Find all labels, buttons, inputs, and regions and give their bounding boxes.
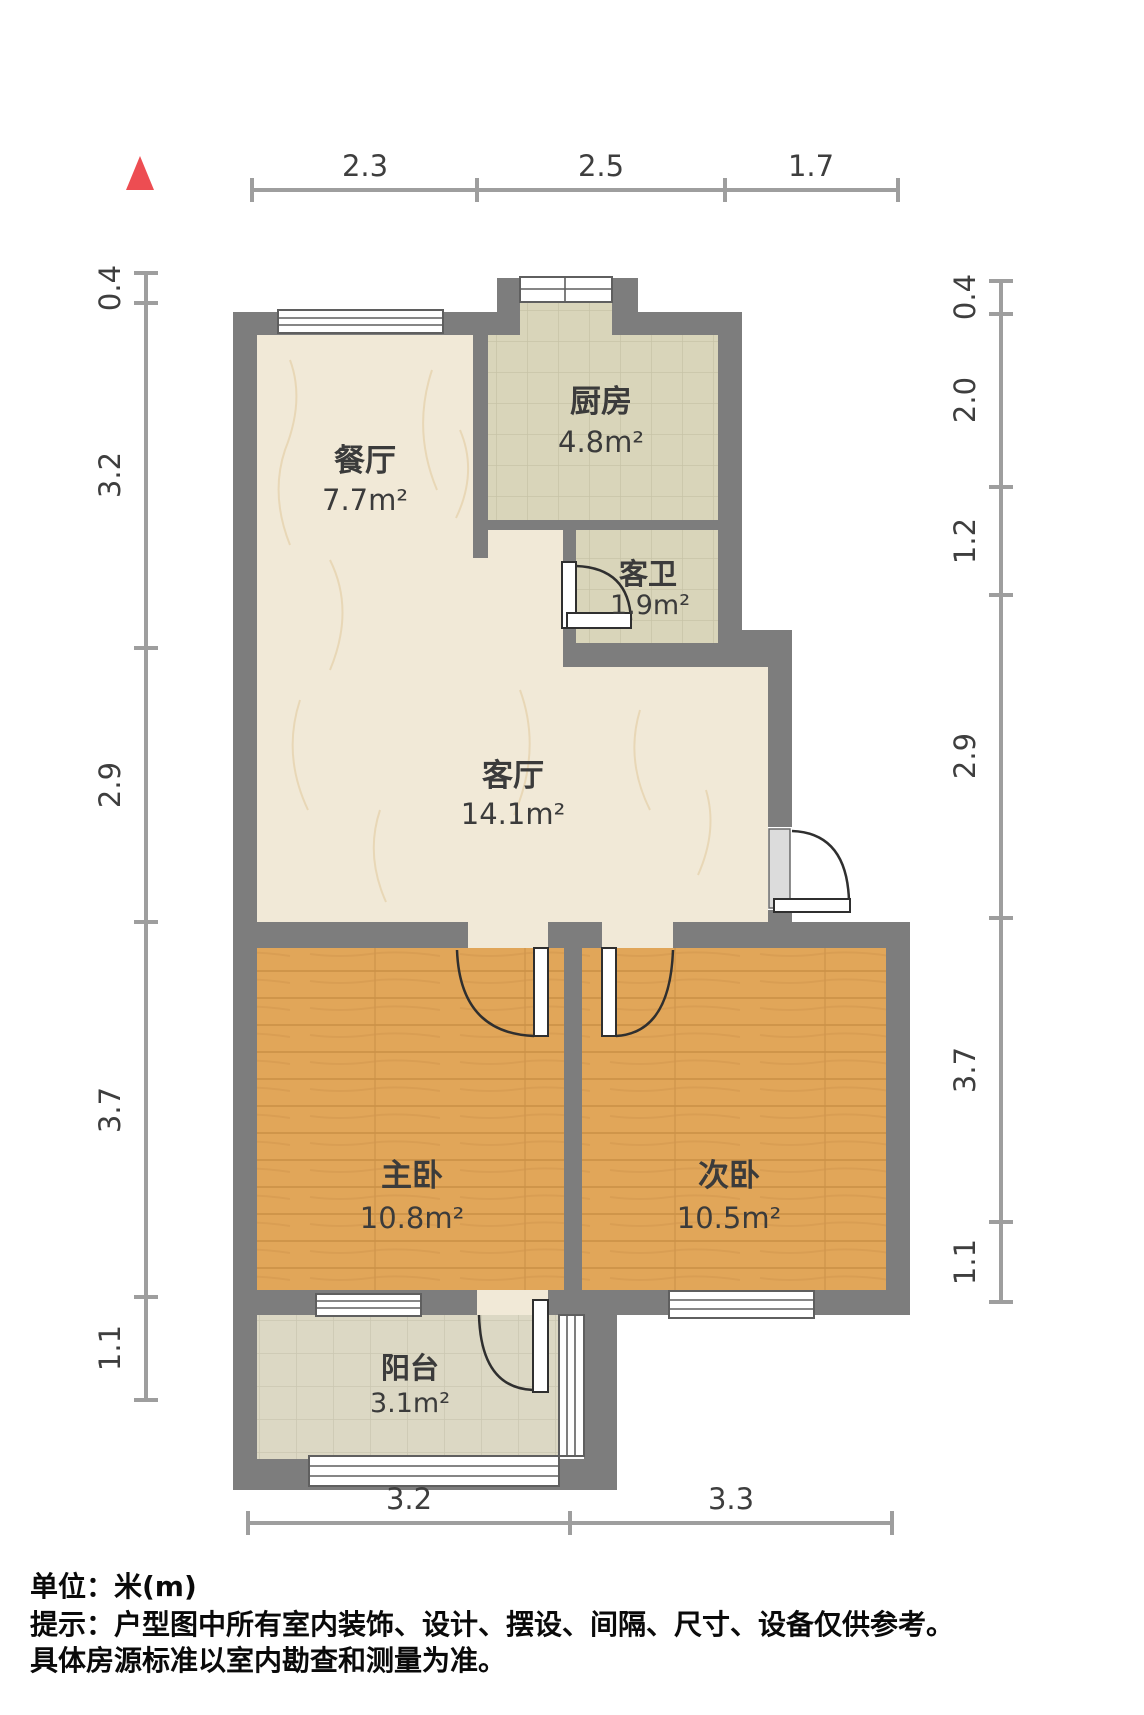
dim-left-2: 3.2 — [93, 452, 127, 498]
dim-top-1: 2.3 — [342, 149, 388, 183]
living-room-area: 14.1m² — [461, 797, 565, 831]
wall-bedroom-top-a — [233, 922, 468, 948]
dim-right-4: 2.9 — [948, 733, 982, 779]
doorway-floor-master — [468, 922, 548, 948]
wall-right-lower — [886, 922, 910, 1315]
wall-kitchen-bottom — [473, 520, 742, 530]
north-triangle-icon — [126, 156, 154, 190]
dim-right-3: 1.2 — [948, 518, 982, 564]
dim-left-5: 1.1 — [93, 1325, 127, 1371]
dim-left-4: 3.7 — [93, 1087, 127, 1133]
second-bedroom-floor — [582, 948, 886, 1290]
doorway-floor-second — [602, 922, 673, 948]
dim-top: 2.3 2.5 1.7 — [252, 149, 898, 202]
wall-bath-bottom — [563, 643, 792, 667]
kitchen-label: 厨房 — [570, 384, 632, 420]
master-bedroom-floor — [257, 948, 564, 1290]
wall-bath-left-a — [563, 530, 576, 562]
wall-bath-left-b — [563, 628, 576, 643]
dim-bottom-1: 3.2 — [386, 1482, 432, 1516]
footer-note-line2: 具体房源标准以室内勘查和测量为准。 — [30, 1644, 506, 1677]
floor-plan-page: 餐厅 7.7m² 厨房 4.8m² 客卫 1.9m² 客厅 14.1m² 主卧 … — [0, 0, 1144, 1715]
master-balcony-window — [316, 1294, 421, 1316]
kitchen-area: 4.8m² — [558, 425, 644, 459]
wall-right-upper — [718, 312, 742, 648]
dining-room-label: 餐厅 — [334, 443, 396, 479]
dim-right-5: 3.7 — [948, 1047, 982, 1093]
second-bedroom-window — [669, 1291, 814, 1318]
balcony-label: 阳台 — [381, 1351, 439, 1385]
footer-unit-line: 单位：米(m) — [30, 1570, 197, 1603]
dim-bottom-2: 3.3 — [708, 1482, 754, 1516]
footer-notes: 单位：米(m) 提示：户型图中所有室内装饰、设计、摆设、间隔、尺寸、设备仅供参考… — [30, 1570, 954, 1677]
floor-plan: 餐厅 7.7m² 厨房 4.8m² 客卫 1.9m² 客厅 14.1m² 主卧 … — [0, 0, 1144, 1715]
second-bedroom-area: 10.5m² — [677, 1201, 781, 1235]
dining-room-area: 7.7m² — [322, 483, 408, 517]
master-bedroom-area: 10.8m² — [360, 1201, 464, 1235]
wall-bedroom-top-c — [673, 922, 910, 948]
balcony-side-window — [559, 1315, 584, 1456]
balcony-bottom-window — [309, 1456, 559, 1486]
dim-right: 0.4 2.0 1.2 2.9 3.7 1.1 — [948, 274, 1013, 1302]
kitchen-bump-floor — [520, 302, 612, 335]
entry-door — [769, 829, 850, 912]
wall-kitchen-bump-right — [612, 278, 638, 312]
balcony-area: 3.1m² — [370, 1388, 450, 1419]
dim-left: 0.4 3.2 2.9 3.7 1.1 — [93, 265, 158, 1400]
dim-top-2: 2.5 — [578, 149, 624, 183]
dim-right-1: 0.4 — [948, 274, 982, 320]
dim-right-2: 2.0 — [948, 377, 982, 423]
dim-top-3: 1.7 — [788, 149, 834, 183]
dim-left-3: 2.9 — [93, 762, 127, 808]
dining-window — [278, 310, 443, 333]
wall-kitchen-bump-left — [497, 278, 520, 312]
living-room-label: 客厅 — [482, 758, 544, 794]
kitchen-window — [520, 277, 612, 302]
dim-right-6: 1.1 — [948, 1239, 982, 1285]
second-bedroom-label: 次卧 — [698, 1158, 760, 1194]
wall-bedroom-divider — [564, 948, 582, 1290]
dim-left-1: 0.4 — [93, 265, 127, 311]
wall-living-right-a — [768, 643, 792, 827]
master-bedroom-label: 主卧 — [381, 1158, 443, 1194]
wall-bedroom-top-b — [548, 922, 602, 948]
bath-area: 1.9m² — [610, 590, 690, 621]
bath-label: 客卫 — [619, 557, 677, 591]
footer-note-line1: 提示：户型图中所有室内装饰、设计、摆设、间隔、尺寸、设备仅供参考。 — [30, 1608, 954, 1641]
